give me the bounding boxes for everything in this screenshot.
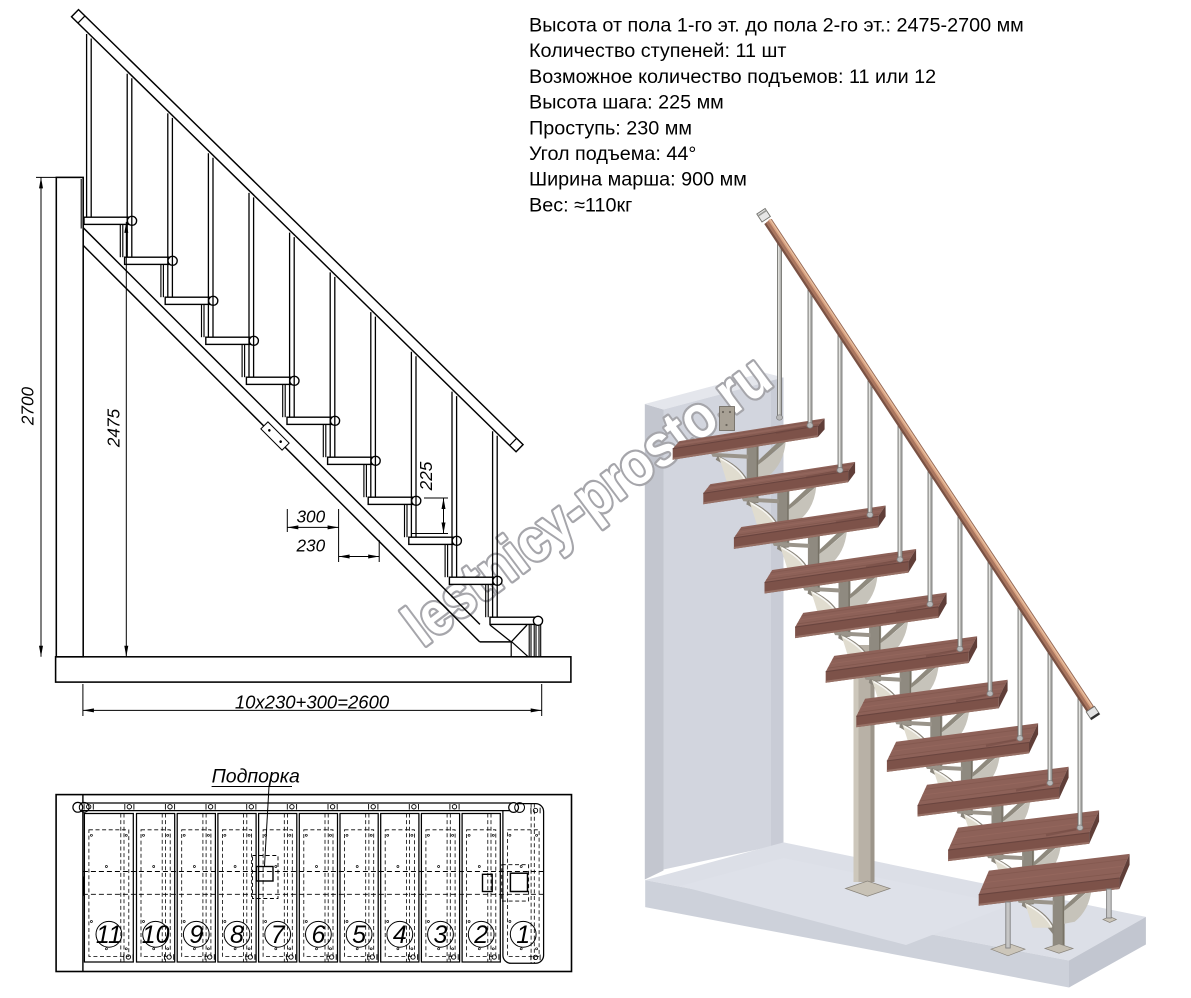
svg-text:Подпорка: Подпорка (212, 766, 300, 788)
svg-text:Количество ступеней: 11 шт: Количество ступеней: 11 шт (529, 40, 786, 62)
svg-text:11: 11 (96, 921, 122, 949)
svg-text:2: 2 (473, 921, 488, 949)
svg-text:9: 9 (189, 921, 203, 949)
svg-text:8: 8 (230, 921, 244, 949)
svg-text:Высота шага: 225 мм: Высота шага: 225 мм (529, 92, 724, 114)
svg-text:Угол подъема: 44°: Угол подъема: 44° (529, 143, 696, 165)
svg-text:Вес: ≈110кг: Вес: ≈110кг (529, 194, 632, 216)
svg-text:1: 1 (516, 921, 530, 949)
svg-text:10x230+300=2600: 10x230+300=2600 (235, 692, 390, 713)
svg-text:Проступь: 230 мм: Проступь: 230 мм (529, 117, 692, 139)
svg-text:300: 300 (297, 507, 326, 527)
svg-text:230: 230 (296, 536, 326, 556)
svg-text:3: 3 (434, 921, 448, 949)
svg-text:Ширина марша: 900 мм: Ширина марша: 900 мм (529, 169, 747, 191)
svg-text:Возможное количество подъемов:: Возможное количество подъемов: 11 или 12 (529, 66, 936, 88)
svg-text:10: 10 (142, 921, 170, 949)
svg-text:Высота от пола 1-го эт. до пол: Высота от пола 1-го эт. до пола 2-го эт.… (529, 15, 1024, 37)
svg-text:6: 6 (311, 921, 325, 949)
svg-text:7: 7 (271, 921, 286, 949)
svg-text:2700: 2700 (18, 386, 38, 426)
svg-text:5: 5 (352, 921, 366, 949)
svg-text:2475: 2475 (104, 408, 124, 448)
svg-text:225: 225 (416, 461, 436, 491)
svg-text:4: 4 (393, 921, 407, 949)
